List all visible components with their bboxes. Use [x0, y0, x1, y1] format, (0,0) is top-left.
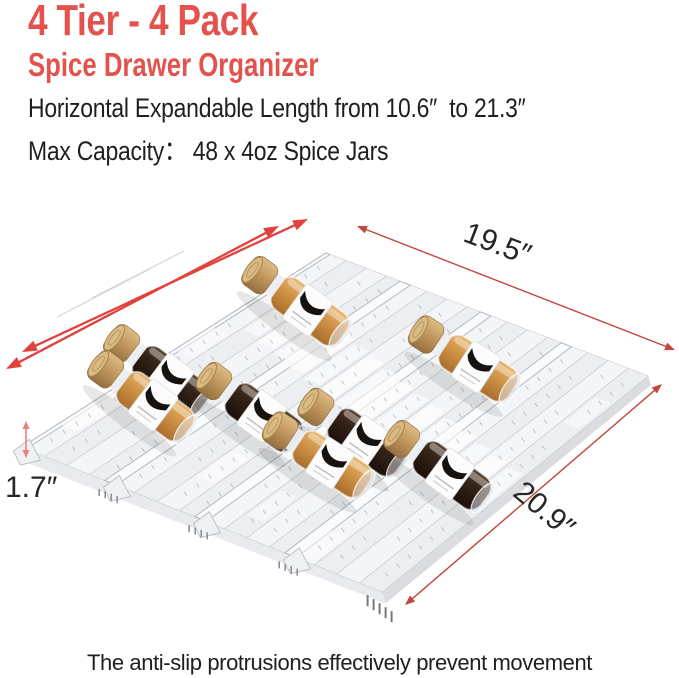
bottom-caption: The anti-slip protrusions effectively pr…: [0, 650, 679, 676]
width-dimension-label: 19.5″: [459, 216, 536, 272]
product-infographic: { "header": { "title": "4 Tier - 4 Pack"…: [0, 0, 679, 678]
product-illustration: 19.5″ 20.9″ 1.7″: [0, 0, 679, 678]
height-dimension-label: 1.7″: [5, 471, 58, 504]
